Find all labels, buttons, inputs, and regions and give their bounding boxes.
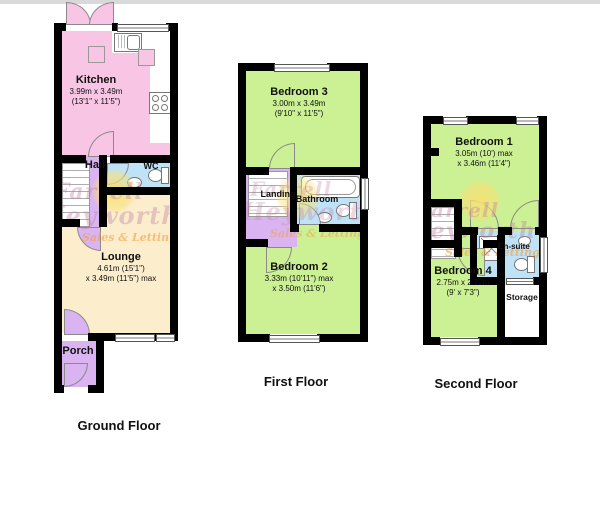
french-door-right-leaf [89,2,114,25]
wall-segment [478,337,547,345]
wall-segment [327,63,368,71]
wall-segment [96,333,104,393]
ground-floor-label: Ground Floor [59,418,179,433]
window [506,278,534,285]
floorplan-page: Farrell Heyworth Sales & Lettings Kitche… [0,0,600,507]
ensuite-cistern-icon [527,256,535,273]
wall-segment [317,334,368,342]
wall-segment [290,224,299,232]
hob-icon [149,92,171,114]
wall-segment [466,116,516,124]
ground-stairs [62,163,90,227]
window [361,178,369,210]
wall-segment [533,277,547,285]
window [117,24,169,32]
wall-segment [238,63,275,71]
lounge-label: Lounge 4.61m (15'1") x 3.49m (11'5") max [65,251,177,284]
wall-segment [54,23,66,31]
bathroom-cistern-icon [349,202,357,219]
wall-segment [319,224,368,232]
kitchen-counter-right [150,31,170,143]
wall-segment [99,195,107,227]
bathroom-label: Bathroom [289,194,345,205]
window [156,334,175,342]
window [516,117,539,125]
wall-segment [290,167,368,175]
hall-label: Hall [77,159,113,172]
wall-segment [54,219,80,227]
storage-label: Storage [500,292,544,302]
bathtub-inner-icon [305,179,356,195]
wall-segment [54,385,64,393]
window [269,335,320,343]
window [274,64,330,72]
wall-segment [238,334,270,342]
wall-segment [431,240,457,248]
bedroom2-label: Bedroom 2 3.33m (10'11") max x 3.50m (11… [242,261,356,294]
wall-segment [170,23,178,341]
window [115,334,155,342]
porch-label: Porch [59,345,97,358]
wall-segment [535,227,539,235]
second-floor-label: Second Floor [416,376,536,391]
french-door-left-leaf [66,2,91,25]
kitchen-drainer-icon [116,35,125,48]
wall-segment [423,116,443,124]
window [540,237,548,273]
bedroom3-label: Bedroom 3 3.00m x 3.49m (9'10" x 11'5") [242,86,356,119]
top-border-strip [0,0,600,4]
wall-segment [88,385,104,393]
bedroom1-label: Bedroom 1 3.05m (10') max x 3.46m (11'4"… [429,136,539,169]
kitchen-label: Kitchen 3.99m x 3.49m (13'1" x 11'5") [46,74,146,107]
window [440,338,480,346]
second-floor-stairs [431,207,456,259]
wc-label: WC [139,161,163,172]
first-floor-label: First Floor [236,374,356,389]
wall-segment [454,199,462,257]
kitchen-unit-icon [88,46,105,63]
bedroom4-label: Bedroom 4 2.75m x 2.22m (9' x 7'3") [423,265,503,298]
wall-segment [238,239,268,247]
wall-segment [423,337,440,345]
wall-segment [462,227,478,235]
wall-segment [246,167,269,175]
wall-segment [498,227,512,235]
ensuite-label: En-suite [490,242,538,252]
wall-segment [99,187,178,195]
kitchen-unit-icon [138,49,155,66]
window [443,117,468,125]
wall-segment [539,116,547,345]
kitchen-sink-basin-icon [127,35,140,50]
